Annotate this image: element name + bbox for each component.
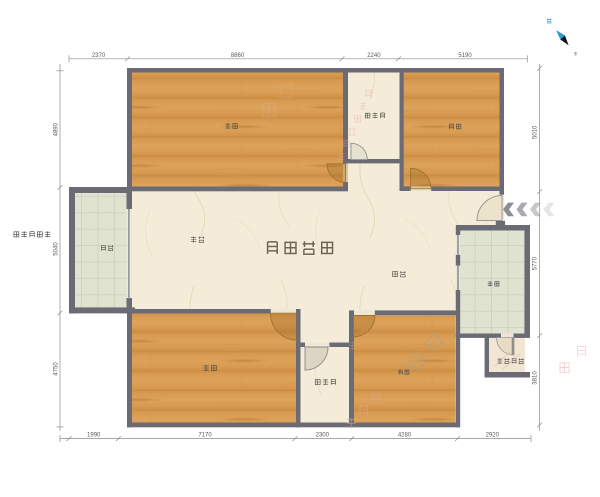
svg-text:5770: 5770 xyxy=(533,256,539,270)
svg-text:2920: 2920 xyxy=(486,433,500,439)
svg-text:2370: 2370 xyxy=(92,53,106,59)
svg-text:5190: 5190 xyxy=(458,53,472,59)
svg-text:4280: 4280 xyxy=(398,433,412,439)
svg-text:5010: 5010 xyxy=(533,125,539,139)
svg-text:2240: 2240 xyxy=(367,53,381,59)
svg-text:4750: 4750 xyxy=(54,362,60,376)
svg-text:4890: 4890 xyxy=(54,122,60,136)
svg-text:2300: 2300 xyxy=(316,433,330,439)
svg-text:5040: 5040 xyxy=(54,242,60,256)
svg-text:1990: 1990 xyxy=(87,433,101,439)
svg-text:8860: 8860 xyxy=(231,53,245,59)
svg-text:7170: 7170 xyxy=(198,433,212,439)
svg-text:3810: 3810 xyxy=(533,371,539,385)
